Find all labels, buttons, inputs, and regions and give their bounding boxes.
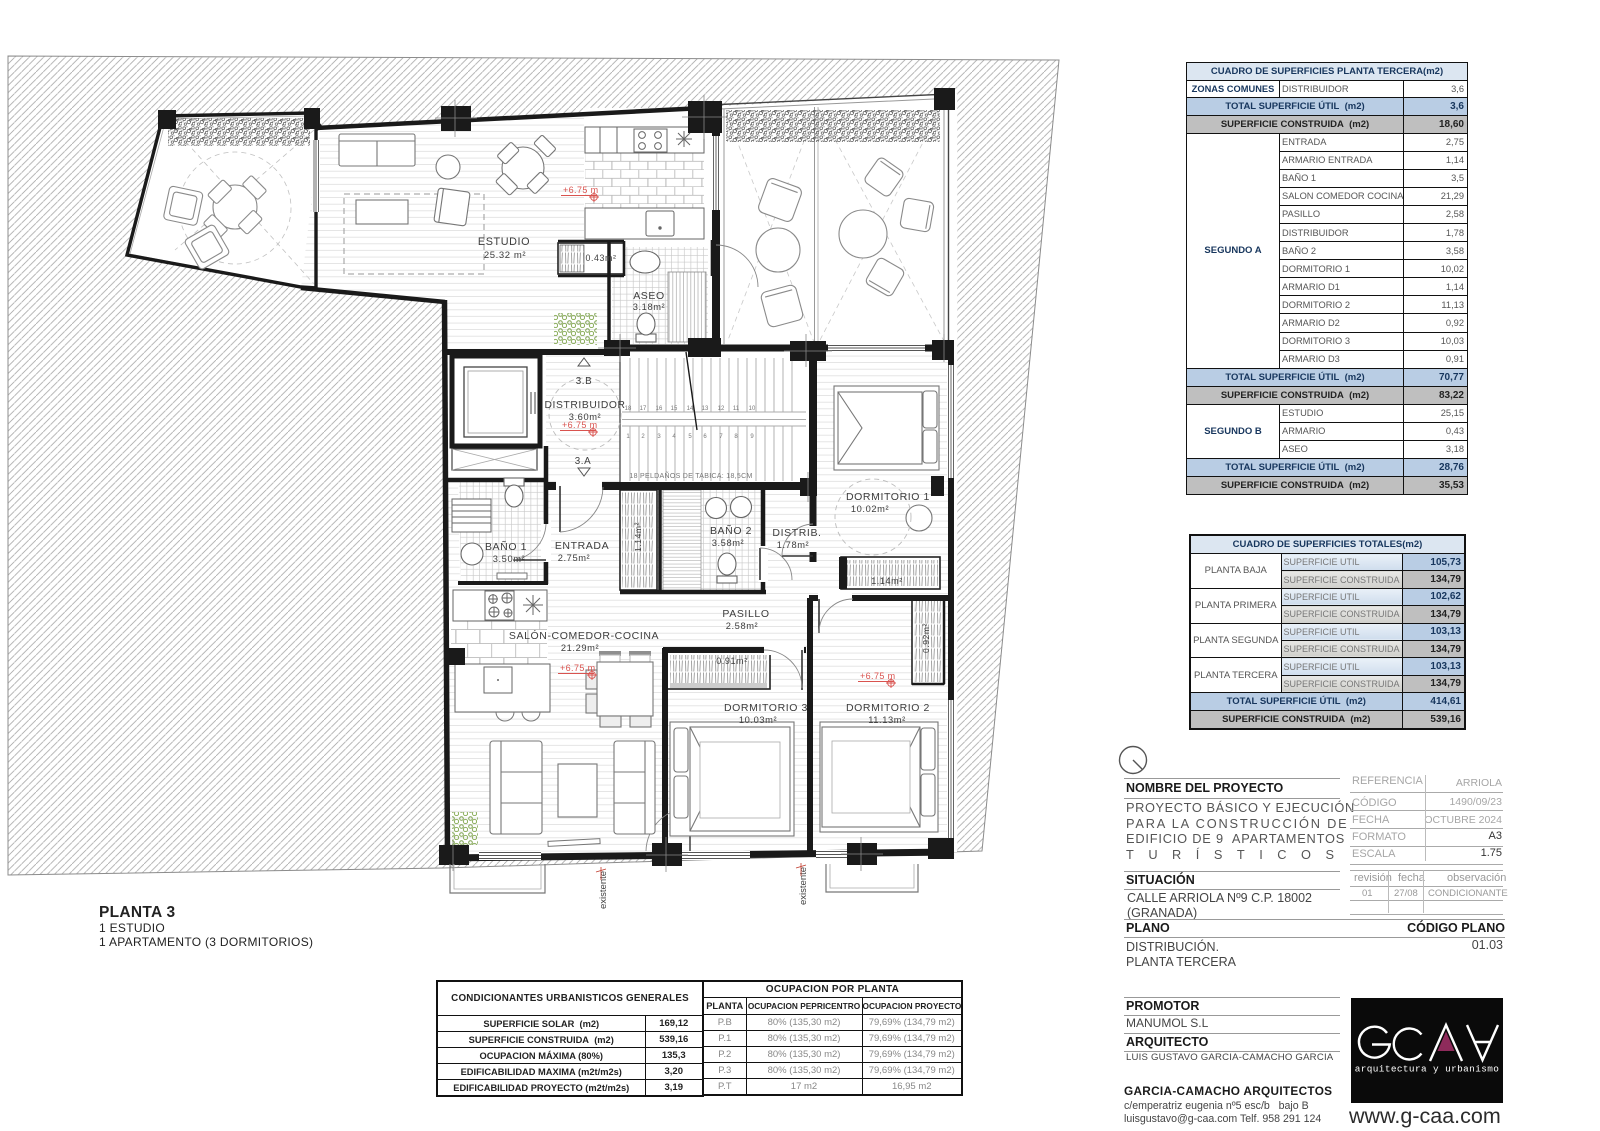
svg-text:SALÓN-COMEDOR-COCINA: SALÓN-COMEDOR-COCINA bbox=[509, 629, 659, 642]
svg-text:12: 12 bbox=[718, 406, 725, 412]
svg-text:arquitectura y urbanismo: arquitectura y urbanismo bbox=[1355, 1064, 1500, 1075]
svg-text:DISTRIB.: DISTRIB. bbox=[772, 527, 821, 539]
svg-text:14: 14 bbox=[687, 406, 694, 412]
svg-text:3.18m²: 3.18m² bbox=[633, 302, 666, 312]
svg-text:0.43m²: 0.43m² bbox=[586, 253, 617, 263]
svg-text:16: 16 bbox=[656, 406, 663, 412]
svg-text:11: 11 bbox=[733, 406, 740, 412]
svg-text:2.75m²: 2.75m² bbox=[558, 553, 591, 563]
svg-text:1.78m²: 1.78m² bbox=[777, 540, 810, 550]
svg-text:existente: existente bbox=[798, 867, 809, 905]
svg-text:3.58m²: 3.58m² bbox=[712, 538, 745, 548]
svg-text:BAÑO 1: BAÑO 1 bbox=[485, 540, 527, 553]
svg-text:11.13m²: 11.13m² bbox=[868, 715, 906, 725]
svg-text:18 PELDAÑOS DE TABICA: 18,5CM: 18 PELDAÑOS DE TABICA: 18,5CM bbox=[629, 471, 752, 480]
svg-text:0.92m²: 0.92m² bbox=[921, 623, 931, 653]
svg-text:13: 13 bbox=[702, 406, 709, 412]
svg-text:3.B: 3.B bbox=[576, 376, 593, 387]
svg-text:1.14m²: 1.14m² bbox=[633, 522, 643, 552]
svg-text:ASEO: ASEO bbox=[633, 290, 665, 302]
svg-text:1.14m²: 1.14m² bbox=[871, 576, 903, 586]
svg-text:3.50m²: 3.50m² bbox=[493, 554, 526, 564]
svg-text:3.A: 3.A bbox=[575, 456, 592, 467]
svg-text:21.29m²: 21.29m² bbox=[561, 643, 599, 653]
svg-text:existente: existente bbox=[598, 871, 609, 909]
svg-text:10.02m²: 10.02m² bbox=[851, 504, 889, 514]
svg-text:25.32 m²: 25.32 m² bbox=[484, 250, 526, 261]
svg-text:DORMITORIO 1: DORMITORIO 1 bbox=[846, 491, 930, 503]
svg-text:BAÑO 2: BAÑO 2 bbox=[710, 524, 752, 537]
svg-text:PASILLO: PASILLO bbox=[722, 608, 769, 620]
svg-text:DISTRIBUIDOR: DISTRIBUIDOR bbox=[545, 400, 626, 411]
svg-text:1 APARTAMENTO (3 DORMITORIOS): 1 APARTAMENTO (3 DORMITORIOS) bbox=[99, 935, 313, 949]
svg-text:ESTUDIO: ESTUDIO bbox=[478, 236, 530, 248]
svg-text:10.03m²: 10.03m² bbox=[739, 715, 777, 725]
svg-text:DORMITORIO 2: DORMITORIO 2 bbox=[846, 702, 930, 714]
svg-text:15: 15 bbox=[671, 406, 678, 412]
svg-text:+6.75 m: +6.75 m bbox=[560, 663, 596, 673]
svg-text:0.91m²: 0.91m² bbox=[716, 656, 748, 666]
svg-text:10: 10 bbox=[749, 406, 756, 412]
svg-text:PLANTA 3: PLANTA 3 bbox=[99, 904, 176, 921]
svg-text:17: 17 bbox=[640, 406, 647, 412]
svg-text:18: 18 bbox=[625, 406, 632, 412]
svg-text:ENTRADA: ENTRADA bbox=[555, 540, 609, 552]
svg-text:DORMITORIO 3: DORMITORIO 3 bbox=[724, 702, 808, 714]
svg-text:2.58m²: 2.58m² bbox=[726, 621, 759, 631]
svg-text:1 ESTUDIO: 1 ESTUDIO bbox=[99, 921, 165, 935]
